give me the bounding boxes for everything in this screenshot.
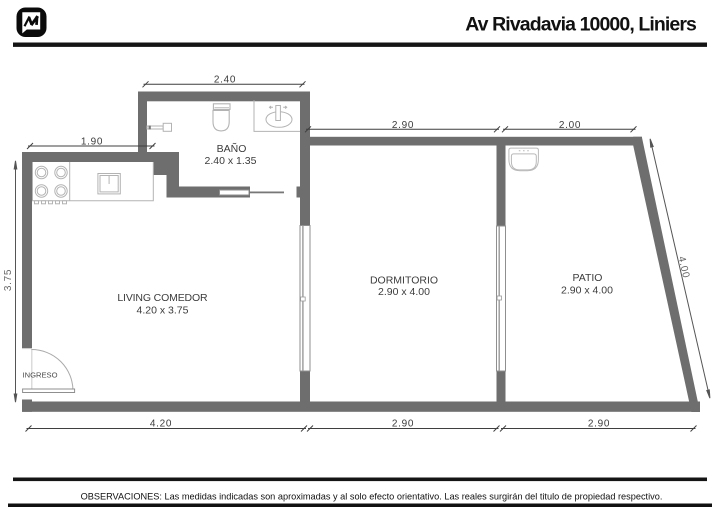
svg-text:2.90: 2.90 xyxy=(392,120,414,131)
svg-text:4.20: 4.20 xyxy=(150,419,172,430)
svg-text:INGRESO: INGRESO xyxy=(22,370,57,379)
svg-text:2.90 x 4.00: 2.90 x 4.00 xyxy=(378,286,430,298)
svg-text:2.90 x 4.00: 2.90 x 4.00 xyxy=(561,285,613,297)
svg-text:LIVING COMEDOR: LIVING COMEDOR xyxy=(117,292,208,304)
svg-text:OBSERVACIONES: Las medidas ind: OBSERVACIONES: Las medidas indicadas son… xyxy=(81,491,663,501)
svg-text:2.40: 2.40 xyxy=(214,75,236,86)
svg-text:3.75: 3.75 xyxy=(3,269,14,291)
svg-text:DORMITORIO: DORMITORIO xyxy=(370,275,438,287)
svg-text:2.40 x 1.35: 2.40 x 1.35 xyxy=(205,155,257,167)
svg-text:PATIO: PATIO xyxy=(573,272,603,284)
svg-text:Av Rivadavia 10000, Liniers: Av Rivadavia 10000, Liniers xyxy=(465,14,697,36)
svg-text:BAÑO: BAÑO xyxy=(217,142,247,155)
svg-text:4.20 x 3.75: 4.20 x 3.75 xyxy=(137,304,189,316)
svg-text:2.90: 2.90 xyxy=(392,419,414,430)
svg-text:1.90: 1.90 xyxy=(81,136,103,147)
svg-text:2.00: 2.00 xyxy=(559,120,581,131)
svg-text:2.90: 2.90 xyxy=(588,419,610,430)
